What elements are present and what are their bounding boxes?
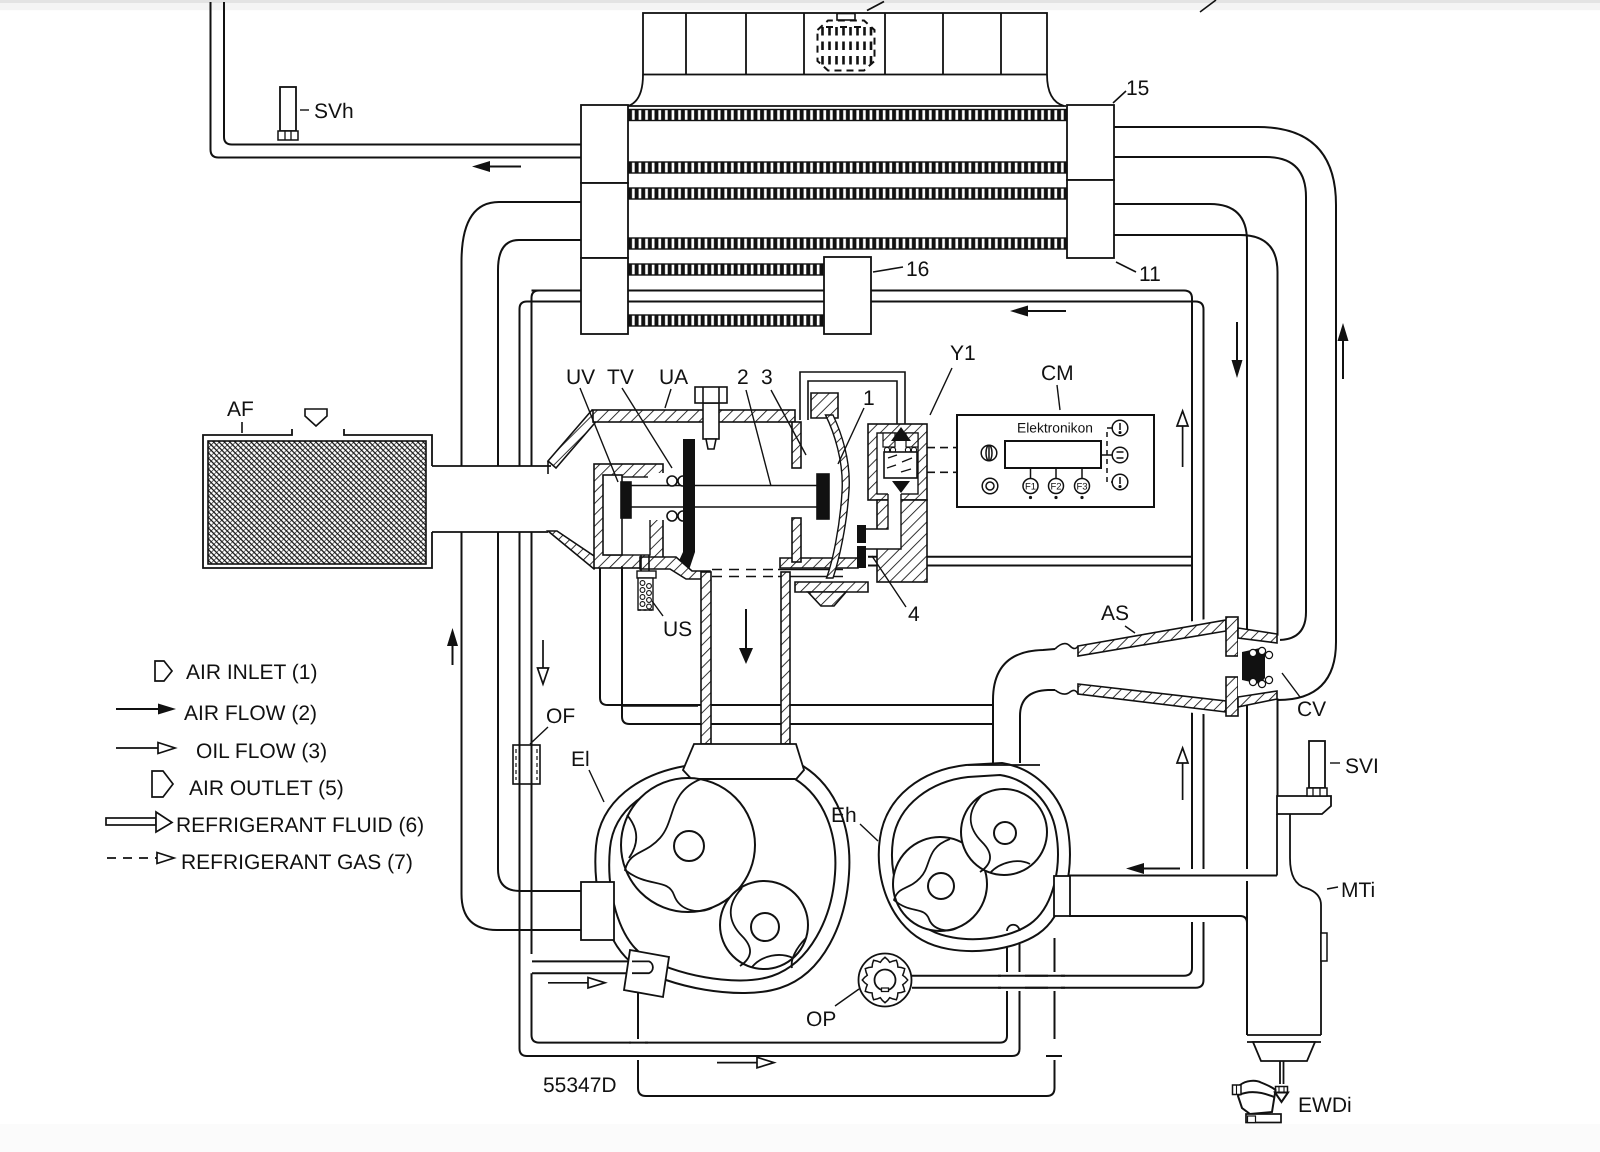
svg-text:F1: F1 — [1025, 482, 1036, 493]
svg-text:AF: AF — [227, 398, 254, 421]
svg-text:1: 1 — [863, 387, 875, 410]
svg-text:REFRIGERANT FLUID (6): REFRIGERANT FLUID (6) — [176, 814, 424, 837]
svg-text:AIR INLET (1): AIR INLET (1) — [186, 661, 317, 684]
svg-text:SVI: SVI — [1345, 755, 1379, 778]
svg-text:UA: UA — [659, 366, 688, 389]
svg-text:OP: OP — [806, 1008, 836, 1031]
svg-text:Eh: Eh — [831, 804, 857, 827]
svg-text:AIR FLOW (2): AIR FLOW (2) — [184, 702, 317, 725]
svg-text:55347D: 55347D — [543, 1074, 617, 1097]
svg-text:4: 4 — [908, 603, 920, 626]
svg-text:Y1: Y1 — [950, 342, 976, 365]
svg-text:Elektronikon: Elektronikon — [1017, 421, 1093, 436]
svg-text:11: 11 — [1139, 263, 1161, 286]
svg-text:SVh: SVh — [314, 100, 354, 123]
svg-text:MTi: MTi — [1341, 879, 1375, 902]
svg-text:REFRIGERANT GAS (7): REFRIGERANT GAS (7) — [181, 851, 413, 874]
svg-text:OIL FLOW (3): OIL FLOW (3) — [196, 740, 327, 763]
svg-text:AIR OUTLET (5): AIR OUTLET (5) — [189, 777, 344, 800]
svg-text:F2: F2 — [1050, 482, 1061, 493]
svg-text:TV: TV — [607, 366, 634, 389]
svg-text:OF: OF — [546, 705, 575, 728]
svg-text:CM: CM — [1041, 362, 1074, 385]
svg-text:F3: F3 — [1076, 482, 1087, 493]
svg-text:15: 15 — [1126, 77, 1149, 100]
svg-text:EWDi: EWDi — [1298, 1094, 1352, 1117]
svg-text:US: US — [663, 618, 692, 641]
svg-text:3: 3 — [761, 366, 773, 389]
svg-text:UV: UV — [566, 366, 595, 389]
svg-text:2: 2 — [737, 366, 749, 389]
svg-text:AS: AS — [1101, 602, 1129, 625]
svg-text:El: El — [571, 748, 590, 771]
svg-text:16: 16 — [906, 258, 929, 281]
svg-text:CV: CV — [1297, 698, 1326, 721]
